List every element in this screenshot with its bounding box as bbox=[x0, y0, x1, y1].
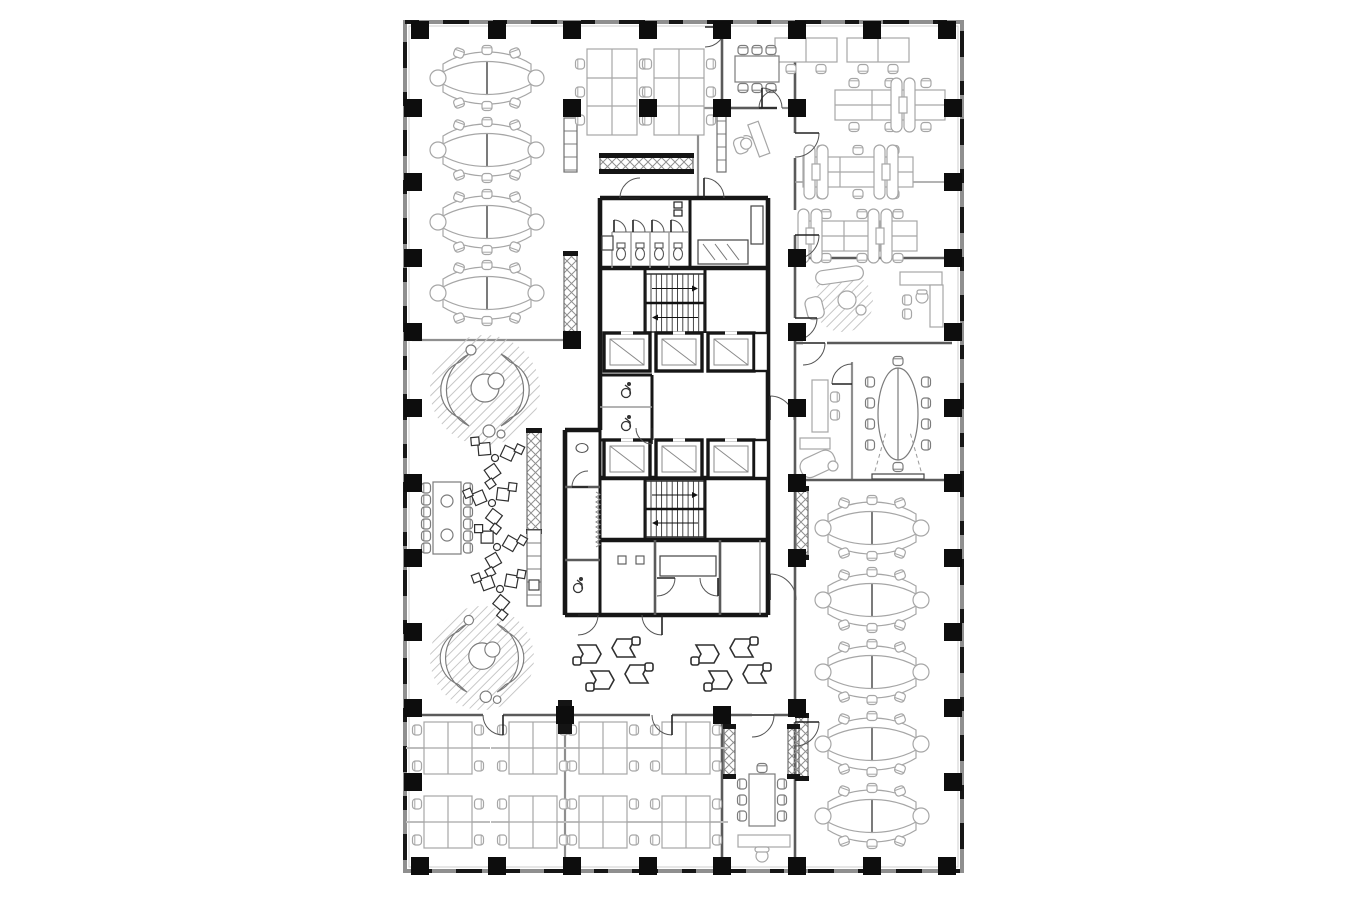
furniture-deskchair bbox=[755, 847, 769, 862]
structural-column bbox=[563, 21, 581, 39]
structural-column bbox=[411, 21, 429, 39]
structural-column bbox=[788, 549, 806, 567]
structural-column bbox=[404, 249, 422, 267]
structural-column bbox=[713, 706, 731, 724]
structural-column bbox=[944, 773, 962, 791]
service-fixture bbox=[698, 240, 748, 264]
storage-cabinet-hatched bbox=[796, 490, 808, 556]
shaft-duct bbox=[754, 333, 768, 371]
cabinet-end-cap bbox=[599, 169, 694, 174]
urinal bbox=[618, 556, 626, 564]
furniture-quad bbox=[406, 796, 490, 848]
toilet bbox=[674, 243, 683, 260]
structural-column bbox=[404, 549, 422, 567]
toilet bbox=[636, 243, 645, 260]
structural-column bbox=[404, 623, 422, 641]
structural-column bbox=[788, 249, 806, 267]
shaft-duct bbox=[754, 440, 768, 478]
structural-column bbox=[639, 21, 657, 39]
service-fixture bbox=[751, 206, 763, 244]
urinal bbox=[636, 556, 644, 564]
structural-column bbox=[488, 857, 506, 875]
structural-column bbox=[713, 99, 731, 117]
storage-cabinet-hatched bbox=[788, 728, 799, 775]
structural-column bbox=[944, 699, 962, 717]
structural-column bbox=[563, 99, 581, 117]
furniture-benchrow bbox=[835, 79, 945, 132]
service-fixture bbox=[660, 556, 716, 576]
floor-plan-page bbox=[0, 0, 1360, 900]
structural-column bbox=[404, 773, 422, 791]
service-fixture bbox=[529, 580, 539, 590]
structural-column bbox=[788, 21, 806, 39]
structural-column bbox=[944, 399, 962, 417]
furniture-benchrow bbox=[807, 210, 917, 263]
structural-column bbox=[788, 699, 806, 717]
storage-cabinet-hatched bbox=[527, 432, 541, 530]
cabinet-end-cap bbox=[526, 428, 542, 433]
structural-column bbox=[404, 323, 422, 341]
structural-column bbox=[404, 99, 422, 117]
storage-cabinet-hatched bbox=[600, 157, 693, 170]
structural-column bbox=[404, 399, 422, 417]
service-fixture bbox=[602, 236, 613, 250]
structural-column bbox=[556, 706, 574, 724]
furniture-quad bbox=[644, 796, 728, 848]
cabinet-end-cap bbox=[723, 724, 736, 729]
electrical-panel bbox=[674, 210, 682, 216]
cabinet-end-cap bbox=[599, 153, 694, 158]
storage-cabinet-hatched bbox=[564, 255, 577, 335]
structural-column bbox=[788, 323, 806, 341]
structural-column bbox=[563, 331, 581, 349]
cabinet-end-cap bbox=[563, 251, 578, 256]
floor-plan-drawing bbox=[0, 0, 1360, 900]
structural-column bbox=[944, 474, 962, 492]
storage-cabinet bbox=[717, 108, 726, 172]
cabinet-end-cap bbox=[787, 724, 800, 729]
structural-column bbox=[863, 21, 881, 39]
structural-column bbox=[639, 99, 657, 117]
structural-column bbox=[411, 857, 429, 875]
structural-column bbox=[788, 857, 806, 875]
structural-column bbox=[404, 474, 422, 492]
structural-column bbox=[938, 857, 956, 875]
structural-column bbox=[944, 173, 962, 191]
storage-cabinet bbox=[564, 118, 577, 172]
structural-column bbox=[563, 857, 581, 875]
structural-column bbox=[788, 399, 806, 417]
sink bbox=[576, 444, 588, 453]
structural-column bbox=[488, 21, 506, 39]
cabinet-end-cap bbox=[787, 774, 800, 779]
lounge-circle bbox=[430, 335, 540, 445]
furniture-mtable8h bbox=[735, 46, 779, 93]
structural-column bbox=[713, 21, 731, 39]
structural-column bbox=[788, 474, 806, 492]
furniture-bench6 bbox=[643, 49, 716, 135]
furniture-sideboard bbox=[738, 835, 790, 847]
furniture-quad bbox=[561, 722, 645, 774]
structural-column bbox=[788, 99, 806, 117]
structural-column bbox=[944, 249, 962, 267]
lounge-circle bbox=[430, 606, 534, 710]
structural-column bbox=[944, 623, 962, 641]
structural-column bbox=[863, 857, 881, 875]
furniture-bench6 bbox=[576, 49, 649, 135]
furniture-quad bbox=[644, 722, 728, 774]
storage-cabinet-hatched bbox=[724, 728, 735, 775]
structural-column bbox=[639, 857, 657, 875]
toilet bbox=[655, 243, 664, 260]
structural-column bbox=[404, 173, 422, 191]
structural-column bbox=[944, 549, 962, 567]
toilet bbox=[617, 243, 626, 260]
electrical-panel bbox=[674, 202, 682, 208]
structural-column bbox=[404, 699, 422, 717]
furniture-quad bbox=[406, 722, 490, 774]
structural-column bbox=[944, 99, 962, 117]
cabinet-end-cap bbox=[723, 774, 736, 779]
structural-column bbox=[938, 21, 956, 39]
structural-column bbox=[944, 323, 962, 341]
service-fixture bbox=[872, 474, 924, 479]
furniture-quad bbox=[561, 796, 645, 848]
structural-column bbox=[713, 857, 731, 875]
